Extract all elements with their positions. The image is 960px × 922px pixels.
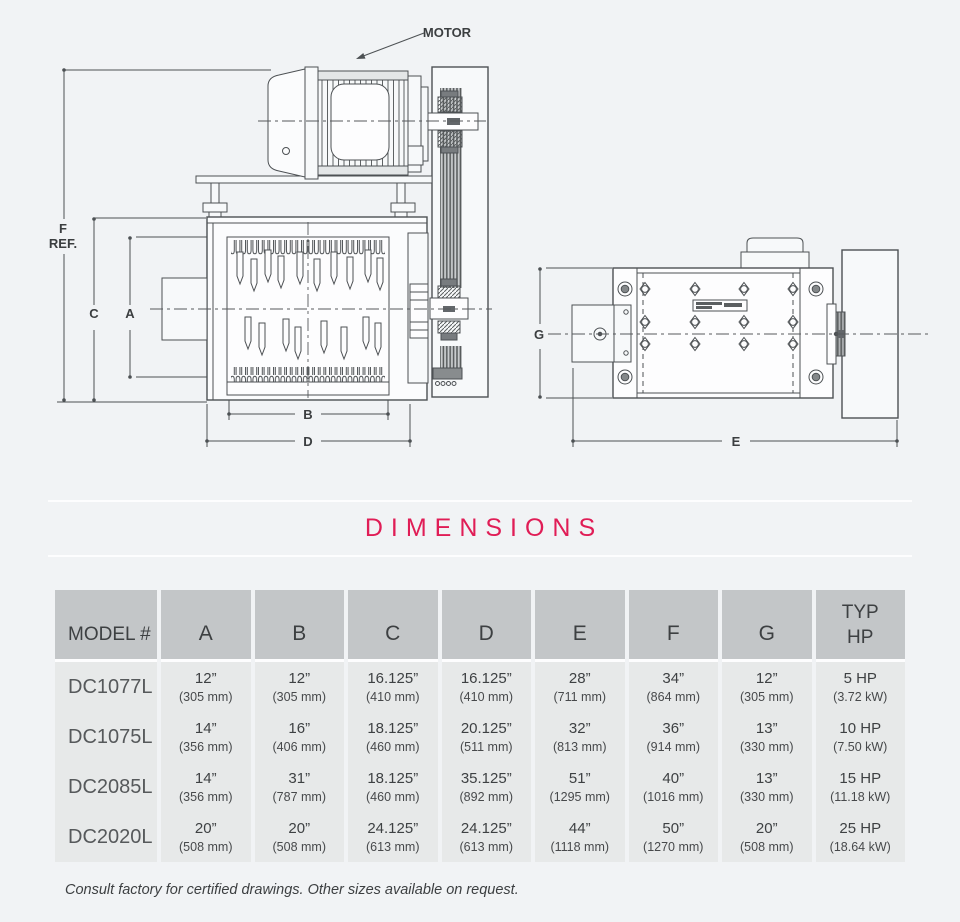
hp-cell: 25 HP(18.64 kW) bbox=[816, 812, 906, 862]
cell-metric: (7.50 kW) bbox=[833, 739, 887, 755]
dim-g-label: G bbox=[534, 327, 544, 342]
dim-cell: 24.125”(613 mm) bbox=[442, 812, 532, 862]
dim-cell: 16”(406 mm) bbox=[255, 712, 345, 762]
dim-cell: 36”(914 mm) bbox=[629, 712, 719, 762]
motor-mount-side bbox=[747, 238, 803, 252]
cell-metric: (3.72 kW) bbox=[833, 689, 887, 705]
cell-metric: (1270 mm) bbox=[643, 839, 703, 855]
col-header-a: A bbox=[161, 590, 251, 662]
cell-metric: (305 mm) bbox=[740, 689, 793, 705]
cell-value: 16.125” bbox=[461, 669, 512, 689]
dim-cell: 14”(356 mm) bbox=[161, 712, 251, 762]
motor-junction-box bbox=[408, 146, 423, 165]
cell-metric: (892 mm) bbox=[460, 789, 513, 805]
cell-metric: (1295 mm) bbox=[550, 789, 610, 805]
cell-value: 20” bbox=[288, 819, 310, 839]
motor-label: MOTOR bbox=[423, 25, 472, 40]
technical-drawings: MOTOR F REF. C A B D G E bbox=[0, 0, 960, 500]
cell-value: 28” bbox=[569, 669, 591, 689]
cell-value: 20” bbox=[756, 819, 778, 839]
granulator-drawing: MOTOR F REF. C A B D G E bbox=[0, 0, 960, 500]
cell-metric: (330 mm) bbox=[740, 739, 793, 755]
dim-cell: 12”(305 mm) bbox=[722, 662, 812, 712]
dim-cell: 35.125”(892 mm) bbox=[442, 762, 532, 812]
cell-value: 40” bbox=[662, 769, 684, 789]
dim-cell: 32”(813 mm) bbox=[535, 712, 625, 762]
col-header-hp: TYP HP bbox=[816, 590, 906, 662]
dim-cell: 13”(330 mm) bbox=[722, 762, 812, 812]
col-header-model: MODEL # bbox=[55, 590, 157, 662]
cell-metric: (914 mm) bbox=[647, 739, 700, 755]
model-cell: DC2085L bbox=[55, 762, 157, 812]
col-header-c: C bbox=[348, 590, 438, 662]
hp-cell: 10 HP(7.50 kW) bbox=[816, 712, 906, 762]
col-header-f: F bbox=[629, 590, 719, 662]
cell-value: 15 HP bbox=[839, 769, 881, 789]
cell-value: 14” bbox=[195, 769, 217, 789]
cell-metric: (508 mm) bbox=[273, 839, 326, 855]
cell-value: 31” bbox=[288, 769, 310, 789]
cell-metric: (460 mm) bbox=[366, 739, 419, 755]
cell-value: 50” bbox=[662, 819, 684, 839]
dim-cell: 20”(508 mm) bbox=[161, 812, 251, 862]
cell-value: 51” bbox=[569, 769, 591, 789]
dim-e-label: E bbox=[732, 434, 741, 449]
cell-metric: (410 mm) bbox=[366, 689, 419, 705]
cell-metric: (511 mm) bbox=[460, 739, 513, 755]
machine-body-front bbox=[162, 217, 428, 400]
cell-value: 35.125” bbox=[461, 769, 512, 789]
cell-value: 18.125” bbox=[367, 719, 418, 739]
motor-fan-cover bbox=[268, 69, 305, 177]
cell-metric: (410 mm) bbox=[460, 689, 513, 705]
dim-cell: 34”(864 mm) bbox=[629, 662, 719, 712]
cell-metric: (711 mm) bbox=[553, 689, 606, 705]
col-header-e: E bbox=[535, 590, 625, 662]
col-header-b: B bbox=[255, 590, 345, 662]
hp-cell: 5 HP(3.72 kW) bbox=[816, 662, 906, 712]
dim-cell: 31”(787 mm) bbox=[255, 762, 345, 812]
cell-metric: (1016 mm) bbox=[643, 789, 703, 805]
dimensions-band: DIMENSIONS bbox=[48, 500, 912, 557]
cell-metric: (18.64 kW) bbox=[830, 839, 891, 855]
dim-cell: 44”(1118 mm) bbox=[535, 812, 625, 862]
dim-cell: 18.125”(460 mm) bbox=[348, 762, 438, 812]
cell-value: 32” bbox=[569, 719, 591, 739]
dim-cell: 40”(1016 mm) bbox=[629, 762, 719, 812]
dim-cell: 14”(356 mm) bbox=[161, 762, 251, 812]
dim-b-label: B bbox=[303, 407, 312, 422]
dim-cell: 51”(1295 mm) bbox=[535, 762, 625, 812]
dim-cell: 28”(711 mm) bbox=[535, 662, 625, 712]
section-title: DIMENSIONS bbox=[357, 514, 603, 543]
dim-cell: 12”(305 mm) bbox=[161, 662, 251, 712]
cell-value: 14” bbox=[195, 719, 217, 739]
dim-d-label: D bbox=[303, 434, 312, 449]
cell-value: 12” bbox=[195, 669, 217, 689]
cell-metric: (356 mm) bbox=[179, 789, 232, 805]
dim-cell: 20”(508 mm) bbox=[722, 812, 812, 862]
dim-cell: 24.125”(613 mm) bbox=[348, 812, 438, 862]
motor-leader-arrow bbox=[356, 53, 366, 59]
dim-cell: 20.125”(511 mm) bbox=[442, 712, 532, 762]
cell-metric: (406 mm) bbox=[273, 739, 326, 755]
machine-body-side bbox=[572, 238, 898, 418]
cell-metric: (508 mm) bbox=[740, 839, 793, 855]
model-cell: DC1077L bbox=[55, 662, 157, 712]
cell-metric: (613 mm) bbox=[460, 839, 513, 855]
cell-metric: (508 mm) bbox=[179, 839, 232, 855]
footnote: Consult factory for certified drawings. … bbox=[65, 882, 960, 898]
cell-value: 13” bbox=[756, 769, 778, 789]
cell-metric: (813 mm) bbox=[553, 739, 606, 755]
cell-value: 24.125” bbox=[461, 819, 512, 839]
cell-value: 20.125” bbox=[461, 719, 512, 739]
dim-c-label: C bbox=[89, 306, 99, 321]
motor-leader-line bbox=[358, 33, 424, 58]
cell-value: 16” bbox=[288, 719, 310, 739]
dim-cell: 18.125”(460 mm) bbox=[348, 712, 438, 762]
cell-value: 12” bbox=[288, 669, 310, 689]
motor-platform bbox=[196, 176, 432, 217]
cell-value: 34” bbox=[662, 669, 684, 689]
motor-frame-plate bbox=[331, 84, 389, 160]
dim-cell: 20”(508 mm) bbox=[255, 812, 345, 862]
cell-value: 10 HP bbox=[839, 719, 881, 739]
model-cell: DC2020L bbox=[55, 812, 157, 862]
col-header-hp-line2: HP bbox=[847, 625, 873, 651]
dimensions-table: MODEL # A B C D E F G TYP HP DC1077L 12”… bbox=[55, 590, 905, 862]
dim-cell: 50”(1270 mm) bbox=[629, 812, 719, 862]
dim-cell: 16.125”(410 mm) bbox=[442, 662, 532, 712]
cell-value: 16.125” bbox=[367, 669, 418, 689]
cell-metric: (613 mm) bbox=[366, 839, 419, 855]
cell-metric: (460 mm) bbox=[366, 789, 419, 805]
nameplate bbox=[693, 300, 747, 311]
dim-cell: 12”(305 mm) bbox=[255, 662, 345, 712]
cell-metric: (864 mm) bbox=[647, 689, 700, 705]
cell-value: 24.125” bbox=[367, 819, 418, 839]
cell-value: 13” bbox=[756, 719, 778, 739]
cell-value: 44” bbox=[569, 819, 591, 839]
cell-metric: (356 mm) bbox=[179, 739, 232, 755]
cell-value: 20” bbox=[195, 819, 217, 839]
cell-value: 5 HP bbox=[844, 669, 877, 689]
dim-cell: 13”(330 mm) bbox=[722, 712, 812, 762]
cell-value: 36” bbox=[662, 719, 684, 739]
motor bbox=[268, 67, 428, 179]
cell-value: 18.125” bbox=[367, 769, 418, 789]
hp-cell: 15 HP(11.18 kW) bbox=[816, 762, 906, 812]
dim-f-label: F bbox=[59, 221, 67, 236]
col-header-g: G bbox=[722, 590, 812, 662]
cell-metric: (330 mm) bbox=[740, 789, 793, 805]
col-header-d: D bbox=[442, 590, 532, 662]
belt-guard-column bbox=[428, 67, 488, 397]
cell-metric: (305 mm) bbox=[273, 689, 326, 705]
dim-a-label: A bbox=[125, 306, 135, 321]
dim-ref-label: REF. bbox=[49, 236, 77, 251]
cell-value: 12” bbox=[756, 669, 778, 689]
cell-metric: (305 mm) bbox=[179, 689, 232, 705]
cell-metric: (1118 mm) bbox=[550, 839, 609, 855]
dim-cell: 16.125”(410 mm) bbox=[348, 662, 438, 712]
cell-metric: (11.18 kW) bbox=[830, 789, 890, 805]
model-cell: DC1075L bbox=[55, 712, 157, 762]
cell-value: 25 HP bbox=[839, 819, 881, 839]
col-header-hp-line1: TYP bbox=[842, 600, 879, 626]
cell-metric: (787 mm) bbox=[273, 789, 326, 805]
